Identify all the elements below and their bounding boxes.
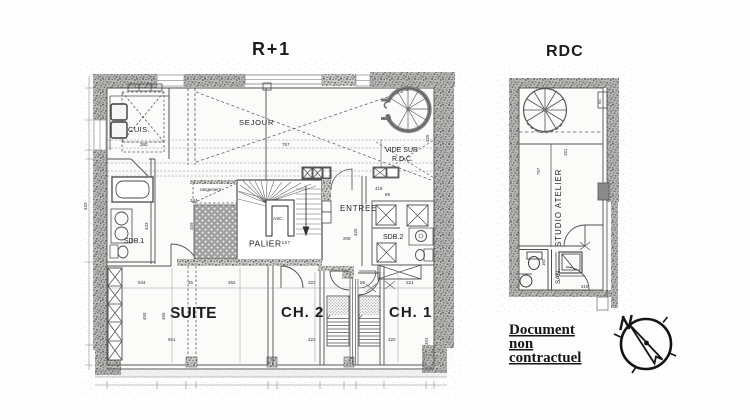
svg-text:rangement: rangement: [200, 187, 222, 192]
svg-text:221: 221: [406, 280, 414, 285]
svg-text:55: 55: [597, 99, 602, 104]
svg-text:534: 534: [138, 280, 146, 285]
svg-text:ENTREE: ENTREE: [340, 204, 377, 213]
svg-text:425: 425: [425, 134, 430, 142]
svg-text:319: 319: [581, 284, 589, 289]
svg-text:SDB.1: SDB.1: [124, 238, 144, 245]
svg-text:455: 455: [142, 312, 147, 320]
svg-text:134: 134: [190, 198, 198, 203]
svg-text:ASC.: ASC.: [273, 216, 284, 221]
svg-text:208: 208: [343, 236, 351, 241]
svg-text:320: 320: [388, 337, 396, 342]
svg-text:262: 262: [228, 280, 236, 285]
svg-text:433: 433: [83, 202, 88, 210]
svg-text:CH. 2: CH. 2: [281, 304, 324, 321]
svg-text:R.D.C.: R.D.C.: [392, 156, 413, 163]
svg-text:CUIS.: CUIS.: [128, 125, 150, 134]
svg-text:160: 160: [541, 258, 546, 266]
svg-text:757: 757: [536, 167, 541, 175]
svg-text:contractuel: contractuel: [509, 350, 581, 366]
svg-text:SEJOUR: SEJOUR: [239, 118, 274, 127]
svg-text:455: 455: [161, 312, 166, 320]
svg-text:SUITE: SUITE: [170, 305, 217, 322]
svg-text:VIDE SUR: VIDE SUR: [385, 147, 418, 154]
svg-text:161: 161: [563, 148, 568, 156]
svg-text:89: 89: [385, 192, 391, 197]
svg-text:331: 331: [424, 337, 429, 345]
svg-text:89: 89: [360, 280, 366, 285]
svg-text:RDC: RDC: [546, 43, 584, 60]
svg-text:459: 459: [189, 222, 194, 230]
svg-text:418: 418: [375, 186, 383, 191]
svg-text:R+1: R+1: [252, 39, 291, 59]
svg-text:757: 757: [282, 142, 290, 147]
svg-text:45: 45: [188, 280, 194, 285]
svg-text:STUDIO ATELIER: STUDIO ATELIER: [554, 168, 563, 247]
svg-text:433: 433: [144, 222, 149, 230]
svg-text:CH. 1: CH. 1: [389, 304, 432, 321]
svg-text:380: 380: [140, 142, 148, 147]
svg-text:425: 425: [353, 228, 358, 236]
svg-text:SDB.2: SDB.2: [383, 234, 403, 241]
